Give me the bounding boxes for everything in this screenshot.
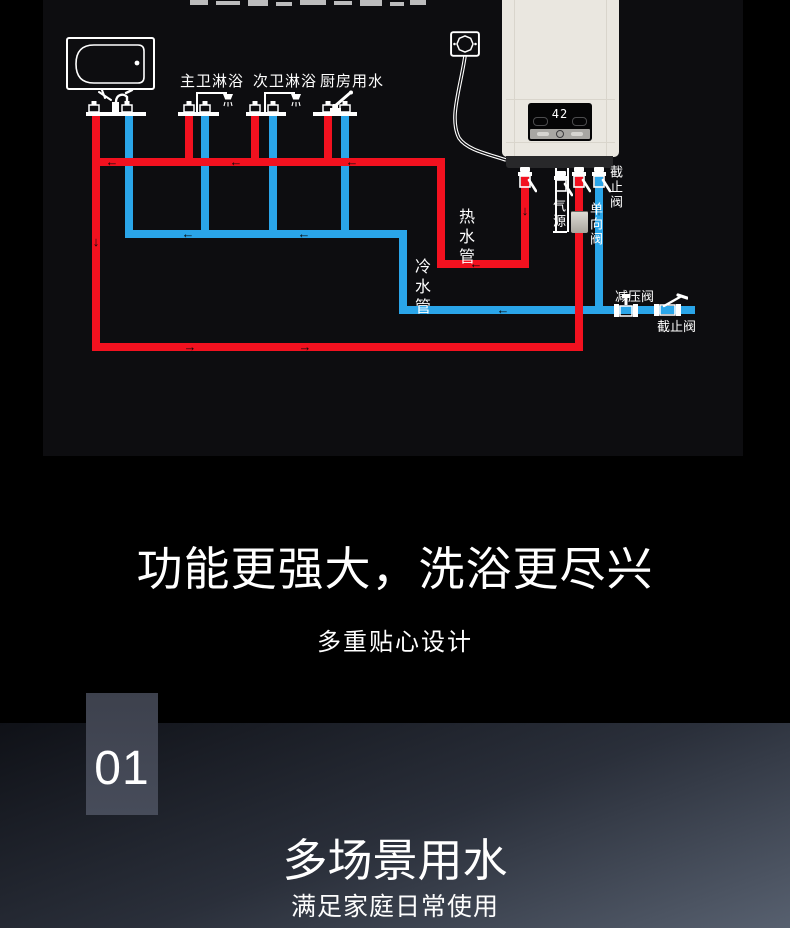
hot-pipe-left-riser xyxy=(92,115,100,351)
shower-head-icon xyxy=(220,94,236,108)
heater-strip-button[interactable] xyxy=(537,132,549,136)
feature-title: 功能更强大，洗浴更尽兴 xyxy=(0,543,790,596)
label-stop-valve-heater: 截止阀 xyxy=(606,165,625,210)
cold-pipe-drop-master xyxy=(201,115,209,238)
flow-arrow-left-icon: ← xyxy=(180,230,196,238)
scene-number: 01 xyxy=(94,745,149,793)
pipe-valve-icon xyxy=(513,167,537,197)
hot-pipe-drop-master xyxy=(185,115,193,162)
flow-arrow-left-icon: ← xyxy=(104,158,120,166)
heater-strip-button[interactable] xyxy=(571,132,583,136)
scene-title: 多场景用水 xyxy=(0,824,790,889)
label-hot-water-pipe: 热水管 xyxy=(452,208,476,268)
label-cold-water-pipe: 冷水管 xyxy=(408,258,432,318)
gas-pipe-end xyxy=(553,231,567,233)
flow-arrow-left-icon: ← xyxy=(344,158,360,166)
product-detail-page: 主卫淋浴 次卫淋浴 厨房用水 ← ← ← ← ← ← ← → → ↓ ↓ ↑ 4… xyxy=(0,0,790,928)
heater-panel-seam xyxy=(506,99,615,100)
fixture-label-kitchen: 厨房用水 xyxy=(320,70,384,91)
cropped-title-fragments xyxy=(188,0,428,7)
pipe-tee-icon xyxy=(267,101,279,113)
cold-pipe-mid-main xyxy=(125,230,407,238)
heater-control-strip xyxy=(530,129,590,139)
feature-subtitle: 多重贴心设计 xyxy=(0,622,790,657)
label-pressure-reducing-valve: 减压阀 xyxy=(615,286,654,305)
heater-power-icon[interactable] xyxy=(556,130,564,138)
fixture-label-master-shower: 主卫淋浴 xyxy=(180,70,244,91)
flow-arrow-left-icon: ← xyxy=(228,158,244,166)
pipe-tee-icon xyxy=(249,101,261,113)
pipe-tee-icon xyxy=(183,101,195,113)
flow-arrow-right-icon: → xyxy=(182,343,198,351)
flow-arrow-down-icon: ↓ xyxy=(521,203,529,219)
cold-pipe-drop-second xyxy=(269,115,277,238)
bathtub-faucet-icon xyxy=(96,89,136,113)
fixture-label-second-shower: 次卫淋浴 xyxy=(253,70,317,91)
shower-head-icon xyxy=(288,94,304,108)
heater-panel-seam xyxy=(506,142,615,143)
heater-display: 42 xyxy=(528,103,592,141)
cold-pipe-inlet-main xyxy=(399,306,695,314)
label-stop-valve-inlet: 截止阀 xyxy=(657,316,696,335)
kitchen-faucet-icon xyxy=(326,90,356,114)
hot-pipe-return-bottom xyxy=(92,343,580,351)
heater-button-right[interactable] xyxy=(572,117,587,126)
hot-pipe-right-riser xyxy=(437,158,445,268)
flow-arrow-left-icon: ← xyxy=(495,306,511,314)
label-check-valve: 单向阀 xyxy=(586,202,605,247)
label-gas-source: 气源 xyxy=(549,199,568,229)
heater-panel-seam xyxy=(514,0,515,157)
flow-arrow-left-icon: ← xyxy=(296,230,312,238)
hot-pipe-drop-second xyxy=(251,115,259,162)
flow-arrow-right-icon: → xyxy=(297,343,313,351)
shower-riser xyxy=(196,92,198,113)
shower-riser xyxy=(264,92,266,113)
pipe-tee-icon xyxy=(199,101,211,113)
stop-valve-icon xyxy=(652,290,688,316)
cold-pipe-bathtub-riser xyxy=(125,115,133,238)
flow-arrow-down-icon: ↓ xyxy=(92,234,100,250)
power-outlet-icon xyxy=(450,31,480,57)
power-cord xyxy=(446,48,510,168)
hot-pipe-drop-kitchen xyxy=(324,115,332,162)
cold-pipe-riser xyxy=(399,230,407,314)
scene-subtitle: 满足家庭日常使用 xyxy=(0,887,790,923)
heater-button-left[interactable] xyxy=(533,117,548,126)
heater-panel-seam xyxy=(606,0,607,157)
cold-pipe-drop-kitchen xyxy=(341,115,349,238)
hot-pipe-top-main xyxy=(92,158,445,166)
scene-number-badge: 01 xyxy=(86,693,158,815)
bathtub-icon xyxy=(66,37,156,91)
